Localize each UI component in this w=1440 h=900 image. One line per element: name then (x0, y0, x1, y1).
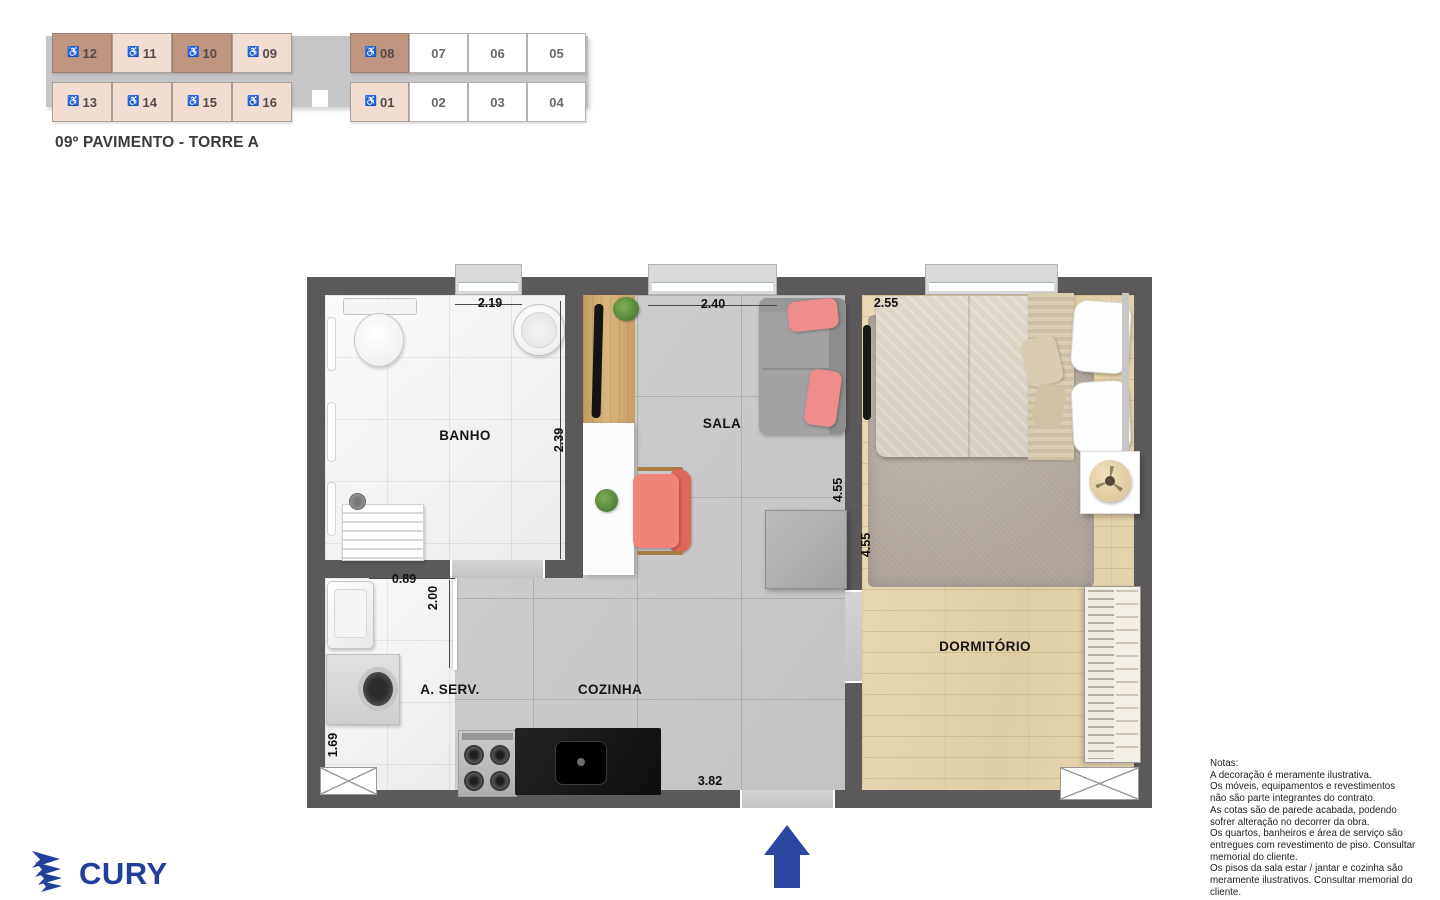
grab-bar (327, 402, 336, 462)
unit-label: 11 (143, 46, 157, 61)
wardrobe-shelves (1116, 590, 1138, 759)
floor-plan: BANHO SALA DORMITÓRIO A. SERV. COZINHA 2… (307, 277, 1152, 808)
room-label-sala: SALA (678, 416, 766, 431)
shower-bench (342, 504, 424, 561)
unit-label: 14 (142, 95, 156, 110)
kitchen-counter (515, 728, 661, 795)
toilet (343, 298, 415, 366)
burner (464, 771, 484, 791)
wall-banho-right (565, 295, 583, 578)
sala-cabinet (765, 510, 847, 589)
dim-aserv-width: 0.89 (381, 572, 427, 586)
unit-cell-06[interactable]: 06 (468, 33, 527, 73)
entrance-door (740, 790, 835, 808)
unit-label: 10 (202, 46, 216, 61)
unit-label: 13 (82, 95, 96, 110)
sofa-pillow (787, 297, 840, 332)
arrow-stem (774, 855, 800, 888)
dim-banho-height: 2.39 (552, 418, 566, 462)
sala-window (648, 264, 777, 295)
banho-window (455, 264, 522, 295)
unit-label: 06 (490, 46, 504, 61)
shaft-box (320, 767, 377, 795)
dormitorio-window (925, 264, 1058, 295)
plant (613, 297, 639, 321)
dim-cozinha-width: 3.82 (687, 774, 733, 788)
unit-cell-11[interactable]: ♿11 (112, 33, 172, 73)
wheelchair-icon: ♿ (247, 48, 259, 58)
unit-label: 08 (380, 46, 394, 61)
chair-arm (637, 551, 683, 555)
unit-label: 12 (82, 46, 96, 61)
bed-headboard (1122, 293, 1129, 460)
notes-title: Notas: (1210, 758, 1440, 770)
washing-machine (326, 654, 400, 725)
unit-label: 15 (202, 95, 216, 110)
shaft-box (1060, 767, 1139, 800)
notes: Notas: A decoração é meramente ilustrati… (1210, 758, 1440, 898)
unit-label: 09 (262, 46, 276, 61)
key-plan: ♿12 ♿11 ♿10 ♿09 ♿08 07 06 05 ♿13 ♿14 ♿15… (46, 33, 590, 125)
room-label-banho: BANHO (422, 428, 508, 443)
wheelchair-icon: ♿ (187, 97, 199, 107)
entrance-arrow-icon (764, 825, 810, 889)
dim-dorm-height: 4.55 (859, 523, 873, 567)
unit-label: 07 (431, 46, 445, 61)
grab-bar (327, 317, 336, 371)
burner (464, 745, 484, 765)
round-sink (513, 304, 565, 356)
cury-logo-text: CURY (79, 858, 168, 889)
wheelchair-icon: ♿ (67, 48, 79, 58)
chair-seat (633, 474, 679, 548)
unit-label: 05 (549, 46, 563, 61)
unit-cell-12[interactable]: ♿12 (52, 33, 112, 73)
banho-door (450, 560, 545, 578)
key-plan-core-notch (312, 90, 328, 107)
burner (490, 745, 510, 765)
room-label-dormitorio: DORMITÓRIO (919, 639, 1051, 654)
unit-cell-16[interactable]: ♿16 (232, 82, 292, 122)
unit-cell-08[interactable]: ♿08 (350, 33, 409, 73)
unit-cell-13[interactable]: ♿13 (52, 82, 112, 122)
dining-chair (631, 467, 693, 555)
unit-cell-07[interactable]: 07 (409, 33, 468, 73)
dim-aserv-height2: 1.69 (326, 723, 340, 767)
dim-sala-width: 2.40 (690, 297, 736, 311)
burner (490, 771, 510, 791)
dormitorio-door (845, 590, 862, 683)
washer-door (358, 667, 398, 711)
wheelchair-icon: ♿ (127, 48, 139, 58)
unit-cell-04[interactable]: 04 (527, 82, 586, 122)
unit-cell-01[interactable]: ♿01 (350, 82, 409, 122)
shower-drain (349, 493, 366, 510)
unit-label: 03 (490, 95, 504, 110)
bed-duvet-seam (968, 296, 970, 457)
faucet (577, 758, 585, 766)
dim-dorm-width: 2.55 (864, 296, 908, 310)
wheelchair-icon: ♿ (365, 48, 377, 58)
room-label-aserv: A. SERV. (402, 682, 498, 697)
unit-cell-03[interactable]: 03 (468, 82, 527, 122)
unit-label: 16 (262, 95, 276, 110)
wardrobe (1084, 586, 1141, 763)
unit-label: 04 (549, 95, 563, 110)
dim-aserv-height: 2.00 (426, 576, 440, 620)
wheelchair-icon: ♿ (187, 48, 199, 58)
unit-cell-05[interactable]: 05 (527, 33, 586, 73)
grab-bar (327, 482, 336, 536)
room-label-cozinha: COZINHA (559, 682, 661, 697)
dimension-line (449, 580, 450, 668)
arrow-head (764, 825, 810, 855)
floor-title: 09º PAVIMENTO - TORRE A (55, 134, 259, 152)
unit-label: 01 (380, 95, 394, 110)
wheelchair-icon: ♿ (67, 97, 79, 107)
table-fan (1089, 460, 1131, 502)
cury-logo: CURY (28, 850, 168, 896)
wheelchair-icon: ♿ (247, 97, 259, 107)
laundry-tank (327, 581, 374, 649)
unit-cell-02[interactable]: 02 (409, 82, 468, 122)
dim-sala-height: 4.55 (831, 468, 845, 512)
dim-banho-width: 2.19 (467, 296, 513, 310)
nightstand (1080, 451, 1140, 514)
unit-cell-14[interactable]: ♿14 (112, 82, 172, 122)
wheelchair-icon: ♿ (365, 97, 377, 107)
cury-logo-icon (28, 850, 72, 896)
bed (876, 293, 1129, 460)
unit-cell-10[interactable]: ♿10 (172, 33, 232, 73)
notes-body: A decoração é meramente ilustrativa. Os … (1210, 770, 1440, 899)
unit-cell-15[interactable]: ♿15 (172, 82, 232, 122)
wheelchair-icon: ♿ (127, 97, 139, 107)
stove (458, 730, 517, 797)
wardrobe-shelves (1088, 590, 1114, 759)
plant (595, 489, 618, 512)
unit-cell-09[interactable]: ♿09 (232, 33, 292, 73)
unit-label: 02 (431, 95, 445, 110)
tv-dormitorio (863, 325, 871, 420)
aserv-partition (453, 578, 457, 670)
